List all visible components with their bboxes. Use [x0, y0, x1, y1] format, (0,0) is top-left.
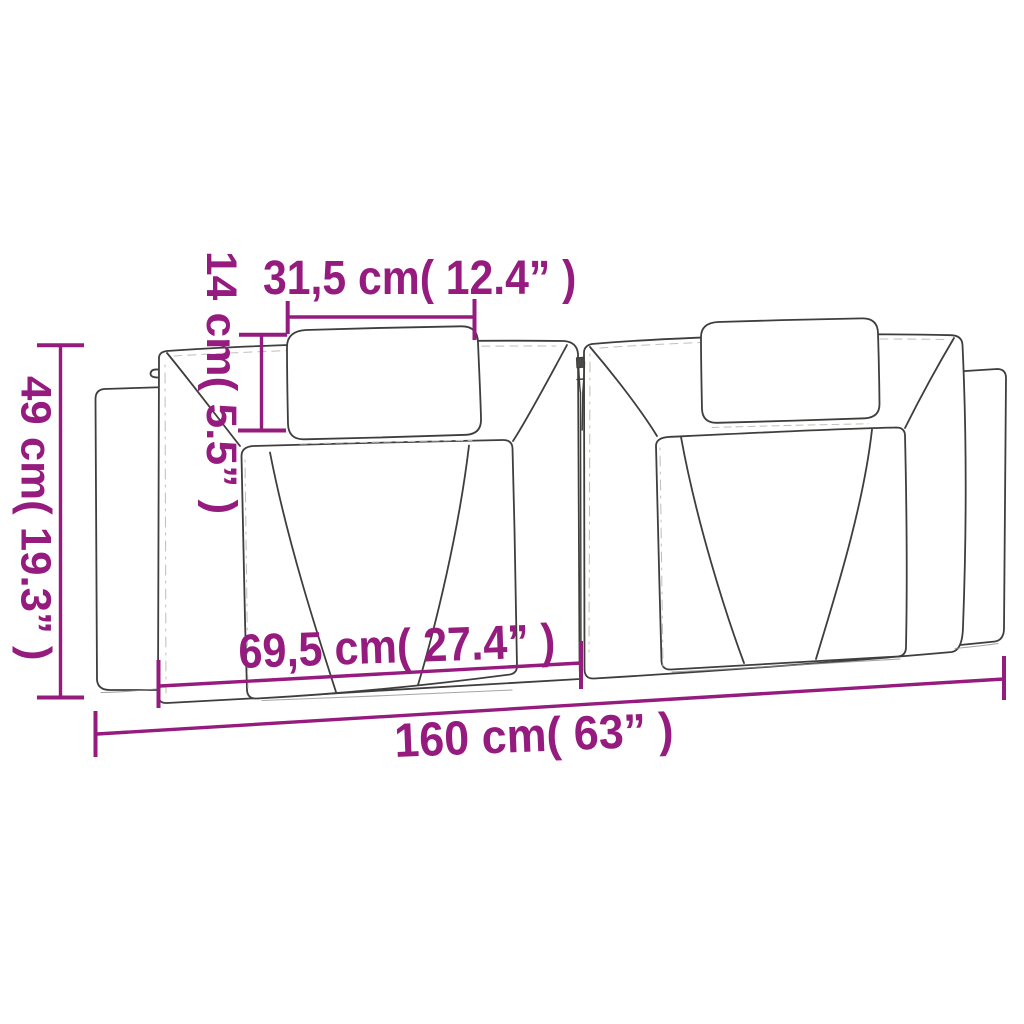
svg-text:14 cm( 5.5” ): 14 cm( 5.5” ): [197, 251, 245, 514]
svg-text:31,5 cm( 12.4” ): 31,5 cm( 12.4” ): [263, 251, 576, 305]
svg-text:69,5 cm( 27.4” ): 69,5 cm( 27.4” ): [237, 614, 556, 679]
svg-text:160 cm( 63” ): 160 cm( 63” ): [393, 702, 674, 767]
svg-text:49 cm( 19.3” ): 49 cm( 19.3” ): [12, 376, 60, 661]
